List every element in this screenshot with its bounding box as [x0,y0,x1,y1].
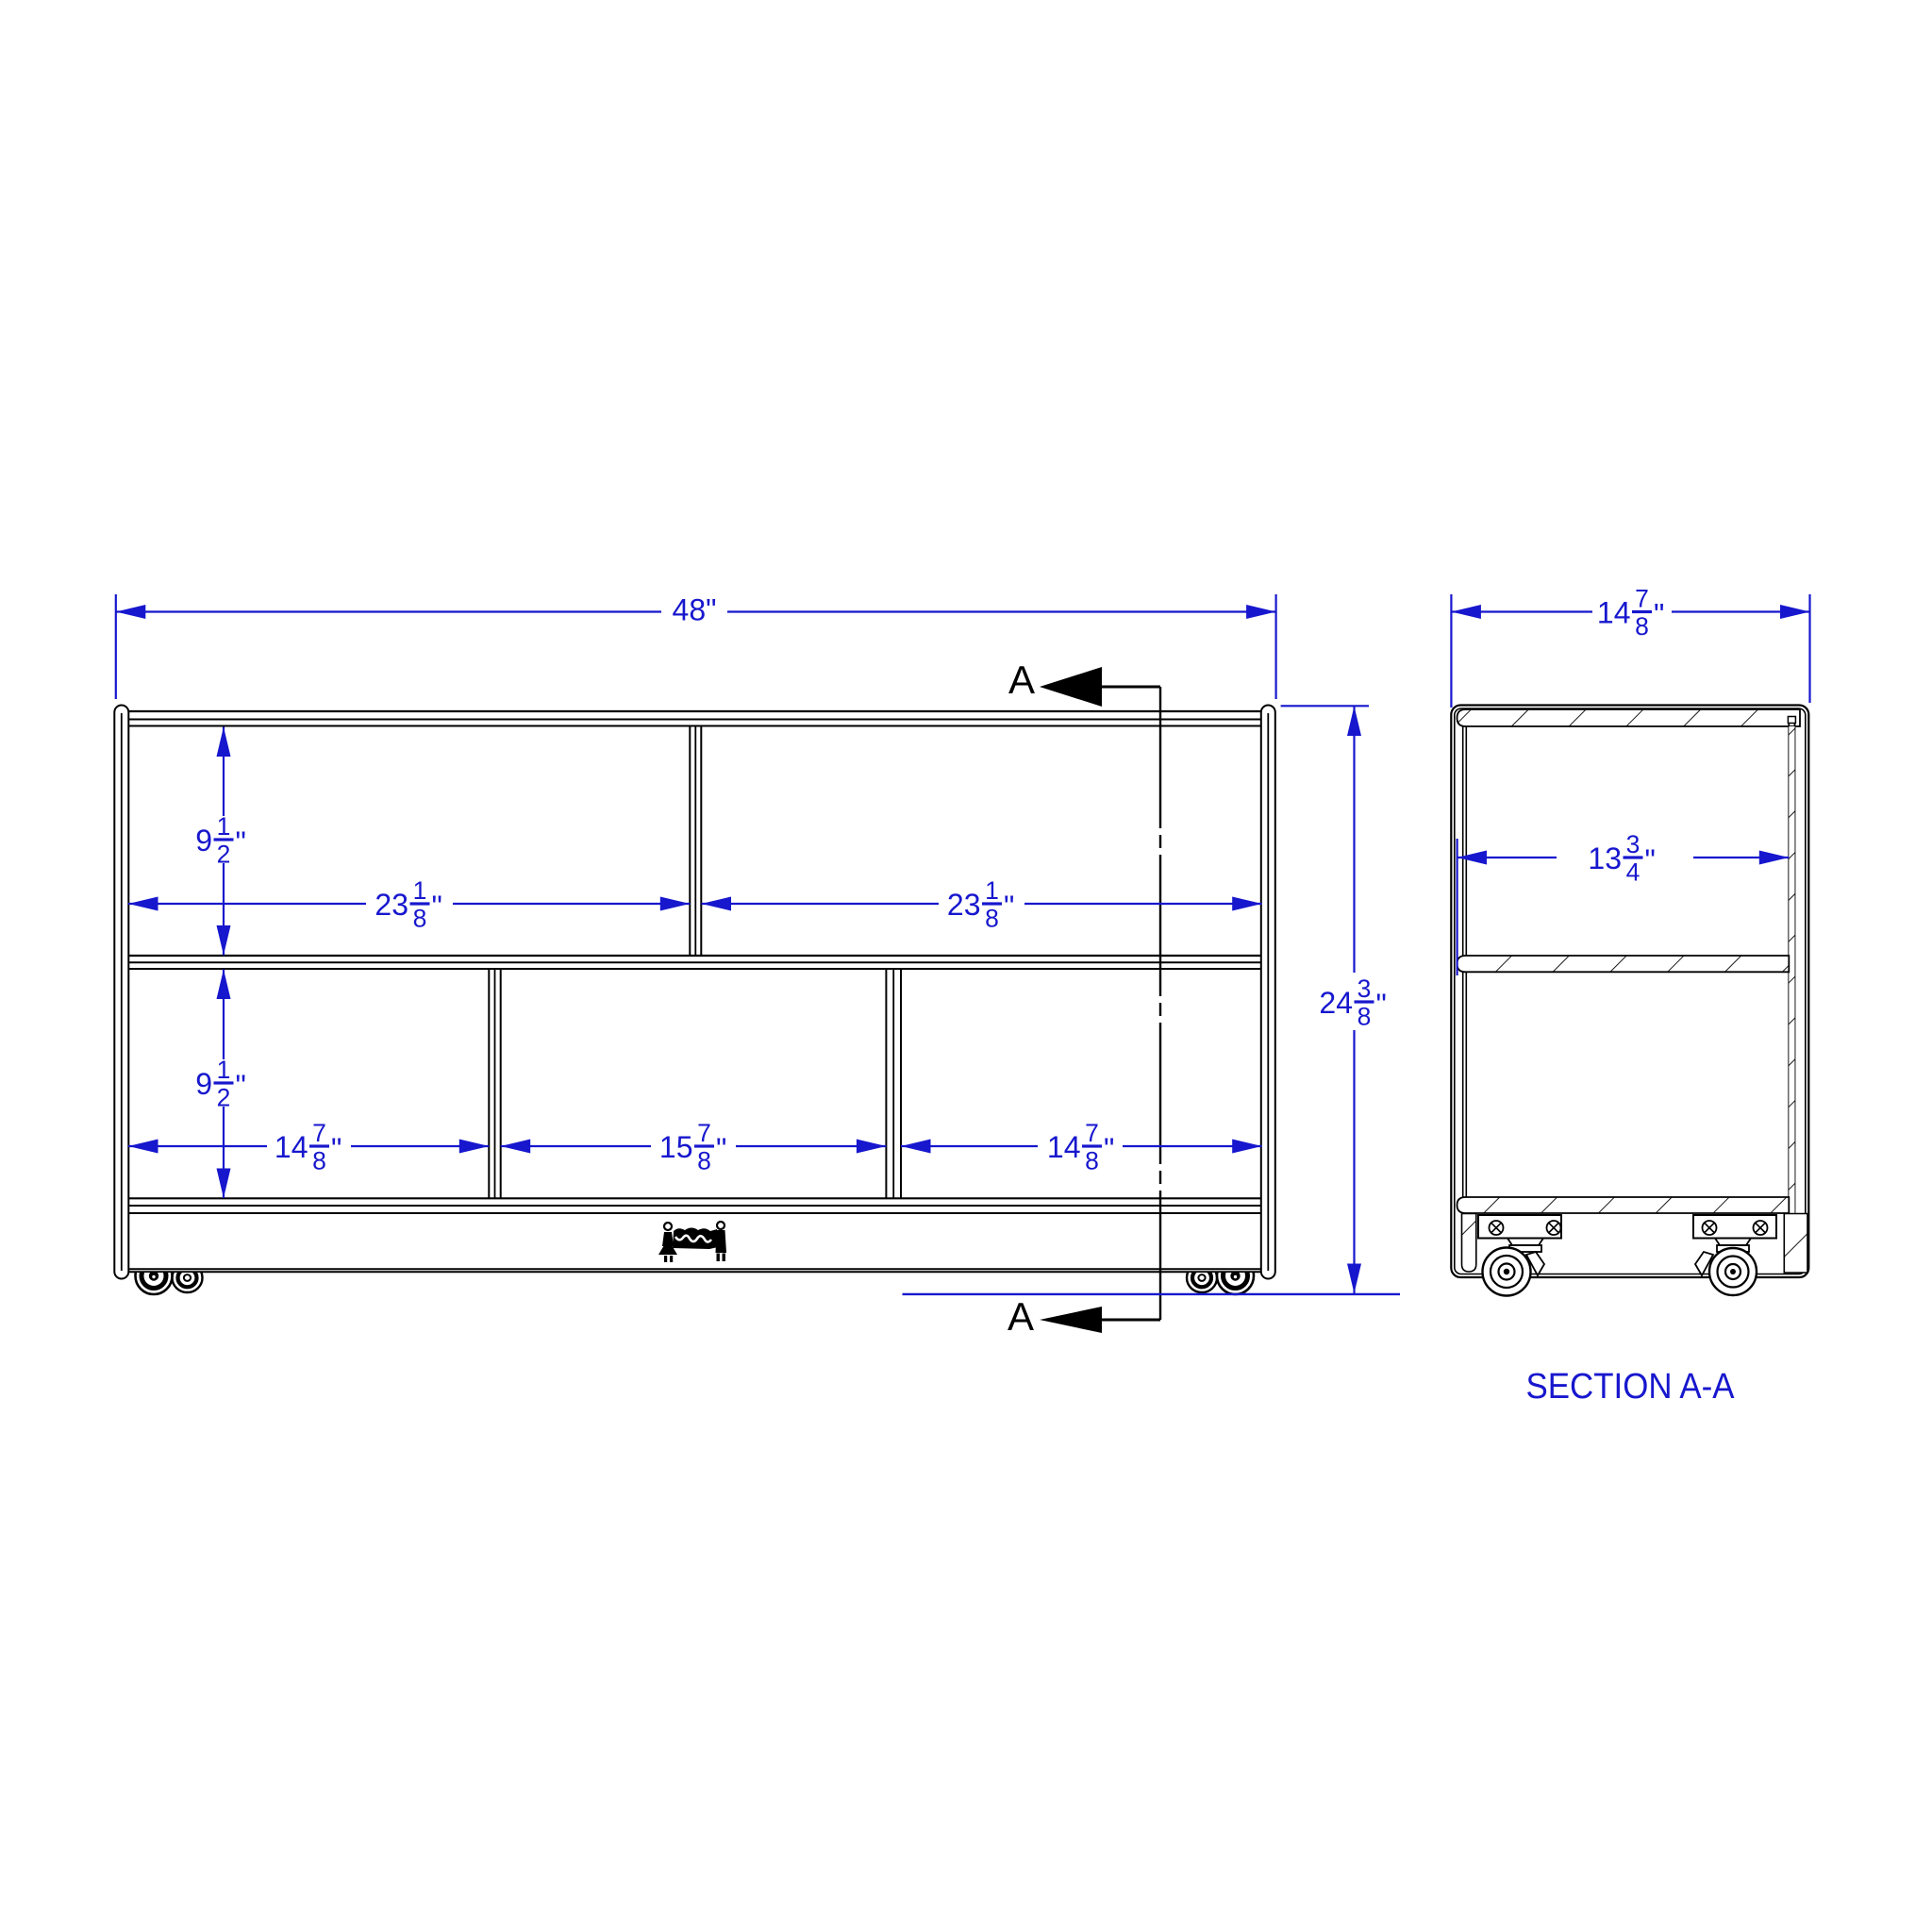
svg-text:7: 7 [697,1119,711,1147]
svg-text:3: 3 [1357,974,1372,1003]
svg-text:": " [236,1069,246,1103]
svg-text:14: 14 [1597,595,1631,629]
svg-text:8: 8 [985,905,999,933]
svg-text:A: A [1008,658,1035,702]
svg-text:7: 7 [1085,1119,1099,1147]
svg-text:48": 48" [673,593,717,627]
svg-text:1: 1 [413,876,427,905]
svg-text:": " [1645,843,1656,877]
svg-text:23: 23 [375,888,408,922]
svg-text:8: 8 [697,1147,711,1175]
svg-text:23: 23 [947,888,981,922]
svg-text:2: 2 [217,841,231,869]
svg-text:2: 2 [217,1084,231,1112]
svg-text:8: 8 [1635,612,1649,641]
svg-text:1: 1 [985,876,999,905]
svg-text:": " [236,825,246,859]
svg-text:9: 9 [195,1067,212,1101]
svg-text:15: 15 [659,1130,693,1164]
svg-text:1: 1 [217,812,231,841]
svg-text:3: 3 [1626,830,1641,858]
svg-text:14: 14 [1047,1130,1081,1164]
svg-text:14: 14 [275,1130,308,1164]
svg-text:4: 4 [1626,858,1641,887]
svg-text:7: 7 [1635,585,1649,613]
svg-text:13: 13 [1588,841,1622,875]
svg-text:": " [331,1132,341,1166]
svg-text:9: 9 [195,824,212,858]
svg-text:8: 8 [413,905,427,933]
svg-text:8: 8 [1085,1147,1099,1175]
svg-text:": " [1376,988,1387,1022]
svg-text:SECTION A-A: SECTION A-A [1526,1367,1736,1407]
svg-text:": " [716,1132,726,1166]
svg-text:1: 1 [217,1056,231,1084]
svg-text:": " [432,890,442,924]
svg-text:": " [1654,598,1664,632]
svg-text:": " [1104,1132,1114,1166]
svg-text:8: 8 [312,1147,326,1175]
svg-text:24: 24 [1319,986,1353,1020]
svg-text:8: 8 [1357,1003,1372,1031]
svg-text:A: A [1008,1294,1034,1339]
svg-text:": " [1004,890,1014,924]
svg-text:7: 7 [312,1119,326,1147]
